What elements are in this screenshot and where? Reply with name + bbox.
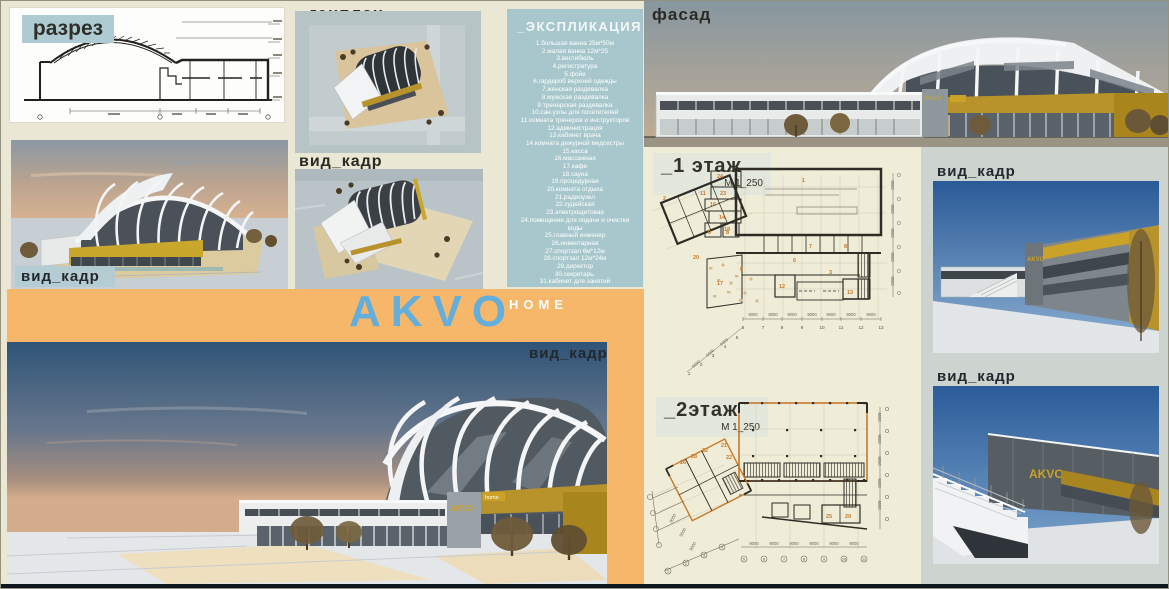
svg-text:9000: 9000 (849, 541, 859, 546)
building-sign-home: home (485, 495, 499, 501)
explication-item: 10.сан.узлы для посетителей (507, 109, 643, 117)
explication-item: 16.массажная (507, 155, 643, 163)
svg-text:6: 6 (742, 325, 745, 330)
svg-text:12: 12 (779, 284, 785, 290)
floor2-plan: 90009000 90009000 90009000 9000 9000 900… (644, 399, 921, 584)
svg-text:9000: 9000 (877, 478, 882, 488)
svg-text:6: 6 (763, 557, 765, 562)
explication-item: 24.помещение для подачи и очистки воды (507, 217, 643, 232)
svg-text:16: 16 (710, 202, 716, 208)
explication-item: 14.комната дежурной медсестры (507, 140, 643, 148)
explication-item: 26.инвентарная (507, 240, 643, 248)
svg-text:5: 5 (743, 557, 745, 562)
facade-sign-akvo: AKVO (924, 96, 942, 102)
svg-text:9000: 9000 (807, 312, 817, 317)
svg-text:13: 13 (878, 325, 884, 330)
svg-text:9000: 9000 (809, 541, 819, 546)
svg-text:4: 4 (724, 344, 727, 349)
explication-item: 28.спортзал 12м*24м (507, 255, 643, 263)
svg-text:9000: 9000 (890, 204, 895, 214)
render-aerial-day (295, 169, 483, 289)
genplan-drawing (309, 25, 465, 145)
logo-akvo: AKVO (349, 287, 516, 337)
svg-text:2: 2 (700, 362, 703, 367)
svg-text:26: 26 (680, 460, 686, 466)
svg-text:8: 8 (781, 325, 784, 330)
svg-text:1: 1 (802, 178, 805, 184)
render-right1: AKVO (933, 181, 1159, 353)
floor1-plan: 90009000 90009000 90009000 9000 9000 900… (647, 167, 921, 383)
floor1-grid-numbers: 67 89 1011 1213 54 32 1 (688, 325, 884, 376)
svg-text:9: 9 (708, 230, 711, 236)
render-right2: AKVO home (933, 386, 1159, 564)
svg-text:1: 1 (688, 371, 691, 376)
presentation-board: разрез (0, 0, 1169, 589)
svg-text:21: 21 (721, 443, 727, 449)
svg-text:9000: 9000 (890, 276, 895, 286)
svg-text:3: 3 (829, 270, 832, 276)
svg-text:8: 8 (726, 230, 729, 236)
svg-text:9000: 9000 (877, 434, 882, 444)
svg-text:17: 17 (717, 281, 723, 287)
svg-text:4: 4 (721, 545, 724, 550)
explication-item: 11.комната тренеров и инструкторов (507, 117, 643, 125)
svg-text:9000: 9000 (846, 312, 856, 317)
floor2-grid-numbers: 56 78 910 11 43 21 (667, 545, 866, 574)
explication-item: 18.сауна (507, 171, 643, 179)
explication-title: _ЭКСПЛИКАЦИЯ (507, 9, 643, 40)
svg-text:6: 6 (793, 258, 796, 264)
svg-text:12: 12 (858, 325, 864, 330)
render-aerial-dusk-label-chip: вид_кадр (15, 266, 115, 287)
render-main: AKVO home вид_кадр (7, 342, 607, 584)
svg-text:14: 14 (719, 215, 726, 221)
svg-text:1: 1 (667, 569, 669, 574)
svg-text:11: 11 (839, 325, 844, 330)
svg-text:9000: 9000 (688, 540, 697, 551)
render-right2-label: вид_кадр (937, 368, 1016, 385)
view-label: вид_кадр (21, 268, 100, 285)
facade-label: фасад (652, 5, 711, 25)
svg-text:28: 28 (691, 454, 697, 460)
explication-list: 1.большая ванна 25м*50м2.малая ванна 12м… (507, 40, 643, 286)
svg-text:9: 9 (823, 557, 825, 562)
logo-home: HOME (509, 297, 568, 312)
explication-item: 19.процедурная (507, 178, 643, 186)
explication-item: 31.кабинет для занятий (507, 278, 643, 286)
svg-text:9000: 9000 (829, 541, 839, 546)
explication-item: 25.главный инженер (507, 232, 643, 240)
explication-item: 3.вестибюль (507, 55, 643, 63)
svg-text:11: 11 (862, 557, 866, 562)
svg-text:9000: 9000 (748, 312, 758, 317)
explication-item: 8.мужская раздевалка (507, 94, 643, 102)
explication-item: 17.кафе (507, 163, 643, 171)
svg-text:8: 8 (803, 557, 805, 562)
svg-text:9000: 9000 (877, 500, 882, 510)
svg-text:23: 23 (720, 191, 726, 197)
explication-item: 15.касса (507, 148, 643, 156)
svg-text:9000: 9000 (789, 541, 799, 546)
svg-text:9000: 9000 (877, 412, 882, 422)
svg-text:9000: 9000 (769, 541, 779, 546)
explication-item: 22.судейская (507, 201, 643, 209)
bottom-strip (1, 584, 1169, 589)
section-label: разрез (22, 15, 114, 43)
explication-item: 4.регистратура (507, 63, 643, 71)
explication-item: 27.спортзал 6м*12м (507, 248, 643, 256)
explication-item: 7.женская раздевалка (507, 86, 643, 94)
svg-text:10: 10 (819, 325, 825, 330)
svg-text:9000: 9000 (890, 228, 895, 238)
explication-item: 20.комната отдыха (507, 186, 643, 194)
svg-text:7: 7 (809, 244, 812, 250)
svg-text:9000: 9000 (877, 456, 882, 466)
explication-item: 29.директор (507, 263, 643, 271)
explication-item: 6.гардероб верхней одежды (507, 78, 643, 86)
svg-text:5: 5 (740, 267, 743, 273)
svg-text:8: 8 (844, 244, 847, 250)
render-aerial-dusk: вид_кадр (11, 140, 288, 290)
svg-text:7: 7 (783, 557, 785, 562)
svg-text:2: 2 (663, 196, 666, 202)
svg-text:24: 24 (717, 174, 724, 180)
section-panel: разрез (9, 7, 285, 123)
svg-text:29: 29 (845, 514, 851, 520)
svg-text:13: 13 (847, 290, 853, 296)
svg-text:2: 2 (685, 561, 687, 566)
svg-text:9000: 9000 (866, 312, 876, 317)
explication-panel: _ЭКСПЛИКАЦИЯ 1.большая ванна 25м*50м2.ма… (507, 9, 643, 287)
svg-text:9000: 9000 (749, 541, 759, 546)
svg-text:3: 3 (703, 553, 705, 558)
building-sign-akvo: AKVO (450, 504, 473, 513)
svg-text:9000: 9000 (768, 312, 778, 317)
svg-text:9000: 9000 (826, 312, 836, 317)
svg-text:9000: 9000 (890, 180, 895, 190)
render-main-label: вид_кадр (529, 345, 608, 362)
svg-text:9000: 9000 (787, 312, 797, 317)
right1-sign-akvo: AKVO (1027, 257, 1045, 263)
render-right1-label: вид_кадр (937, 163, 1016, 180)
svg-text:11: 11 (700, 191, 706, 197)
facade-render: AKVO фасад (644, 1, 1169, 147)
svg-text:25: 25 (826, 514, 832, 520)
explication-item: 23.электрощитовая (507, 209, 643, 217)
genplan-backdrop (295, 11, 481, 153)
svg-text:9: 9 (801, 325, 804, 330)
svg-text:32: 32 (702, 448, 708, 454)
explication-item: 13.кабинет врача (507, 132, 643, 140)
svg-text:22: 22 (726, 455, 732, 461)
explication-item: 1.большая ванна 25м*50м (507, 40, 643, 48)
svg-text:7: 7 (762, 325, 765, 330)
svg-text:9000: 9000 (678, 526, 687, 537)
svg-text:5: 5 (736, 335, 739, 340)
svg-text:9000: 9000 (890, 252, 895, 262)
svg-text:3: 3 (712, 353, 715, 358)
right2-sign-akvo: AKVO (1029, 467, 1064, 481)
svg-text:20: 20 (693, 255, 699, 261)
